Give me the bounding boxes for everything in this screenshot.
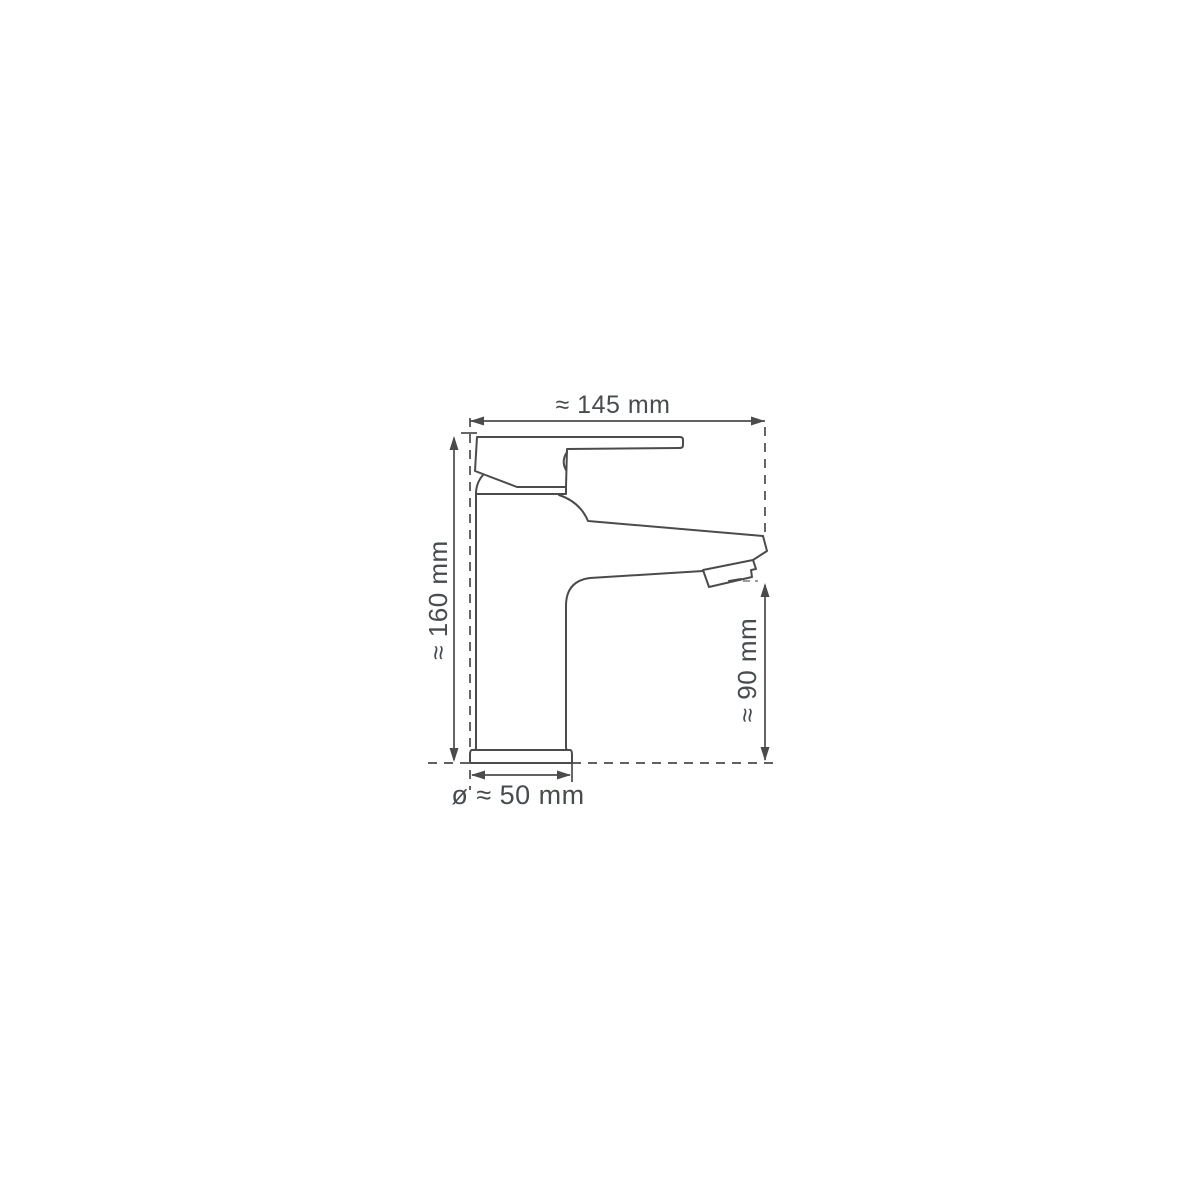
spout-height-arrowhead-top xyxy=(761,583,770,597)
width-arrowhead-right xyxy=(751,417,765,426)
height-arrowhead-top xyxy=(450,436,459,450)
base-diameter-label: ø ≈ 50 mm xyxy=(451,780,584,810)
width-arrowhead-left xyxy=(470,417,484,426)
faucet-technical-drawing: ≈ 145 mm ≈ 160 mm ≈ 90 mm ø ≈ 50 mm xyxy=(0,0,1200,1200)
dimension-width: ≈ 145 mm xyxy=(470,391,765,426)
height-arrowhead-bottom xyxy=(450,748,459,762)
dimension-height: ≈ 160 mm xyxy=(423,436,459,762)
spout-underside-edge xyxy=(566,571,703,606)
dimension-spout-height: ≈ 90 mm xyxy=(732,583,770,761)
width-label: ≈ 145 mm xyxy=(556,391,671,419)
cartridge-neck-left-arc xyxy=(476,475,483,494)
base-diameter-arrowhead-left xyxy=(471,771,485,780)
faucet-outline xyxy=(470,437,767,763)
height-label: ≈ 160 mm xyxy=(423,540,453,659)
spout-height-arrowhead-bottom xyxy=(761,747,770,761)
spout-top-edge xyxy=(559,495,763,536)
base-diameter-arrowhead-right xyxy=(557,771,571,780)
aerator-path xyxy=(703,560,756,587)
diagram-page: ≈ 145 mm ≈ 160 mm ≈ 90 mm ø ≈ 50 mm xyxy=(0,0,1200,1200)
handle-lever-path xyxy=(475,437,683,487)
base-flange-path xyxy=(470,745,572,763)
spout-tip-edge xyxy=(753,536,767,560)
spout-height-label: ≈ 90 mm xyxy=(732,618,762,722)
dimension-base-diameter: ø ≈ 50 mm xyxy=(451,763,584,810)
